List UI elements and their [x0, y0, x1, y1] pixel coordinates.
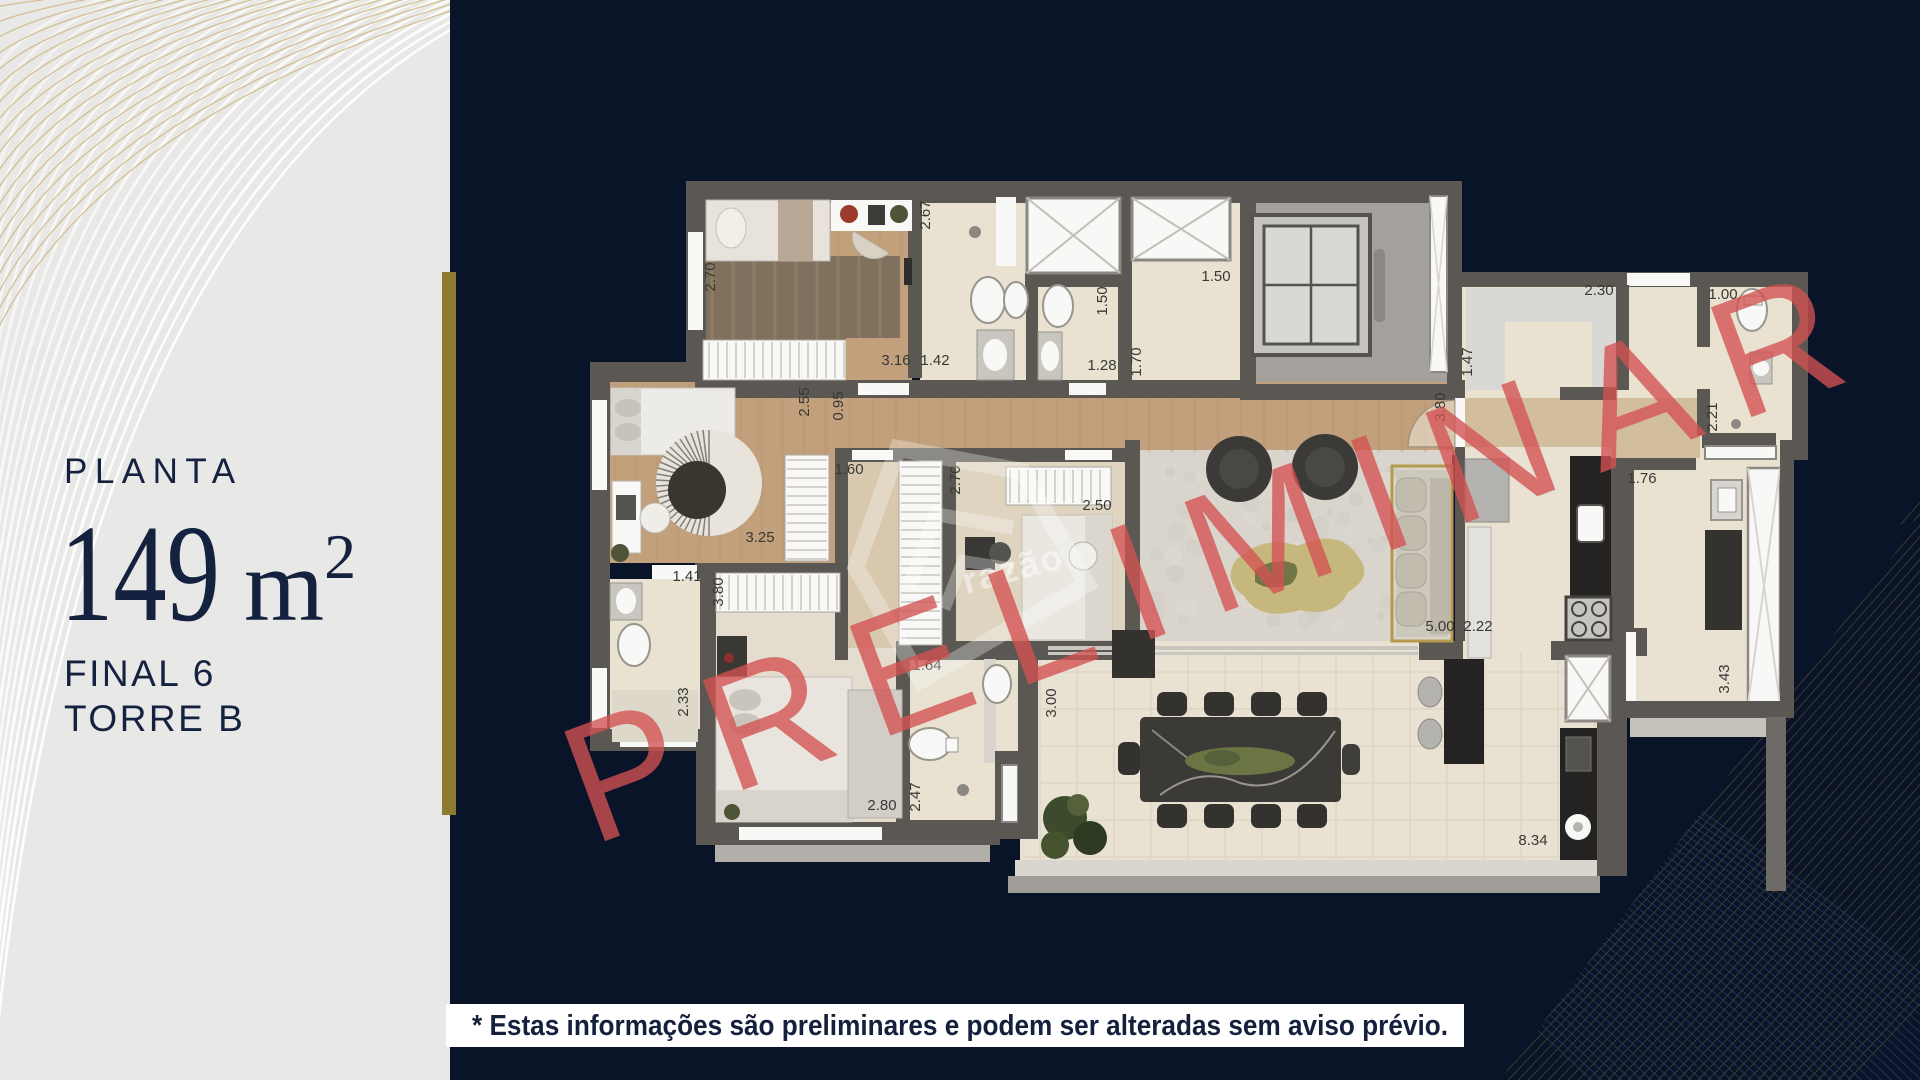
svg-text:3.16: 3.16: [881, 352, 910, 369]
svg-text:2.70: 2.70: [702, 262, 719, 291]
svg-text:8.34: 8.34: [1518, 832, 1547, 849]
svg-text:3.43: 3.43: [1716, 664, 1733, 693]
svg-text:2.80: 2.80: [867, 797, 896, 814]
svg-text:1.42: 1.42: [920, 352, 949, 369]
svg-text:3.25: 3.25: [745, 529, 774, 546]
svg-text:1.60: 1.60: [834, 461, 863, 478]
svg-text:1.50: 1.50: [1094, 286, 1111, 315]
svg-text:5.00: 5.00: [1425, 618, 1454, 635]
svg-text:FINAL 6: FINAL 6: [64, 653, 216, 694]
svg-text:1.28: 1.28: [1087, 357, 1116, 374]
svg-text:3.80: 3.80: [710, 577, 727, 606]
svg-text:1.41: 1.41: [672, 568, 701, 585]
svg-text:2.67: 2.67: [917, 200, 934, 229]
svg-text:1.50: 1.50: [1201, 268, 1230, 285]
svg-text:2.22: 2.22: [1463, 618, 1492, 635]
svg-text:* Estas informações são prelim: * Estas informações são preliminares e p…: [472, 1010, 1448, 1042]
svg-text:2.47: 2.47: [907, 782, 924, 811]
svg-text:1.70: 1.70: [1128, 347, 1145, 376]
svg-text:2.70: 2.70: [947, 465, 964, 494]
svg-text:2.30: 2.30: [1584, 282, 1613, 299]
svg-text:2.55: 2.55: [796, 387, 813, 416]
svg-text:0.95: 0.95: [830, 391, 847, 420]
svg-text:PLANTA: PLANTA: [64, 452, 243, 491]
svg-text:TORRE B: TORRE B: [64, 698, 245, 739]
